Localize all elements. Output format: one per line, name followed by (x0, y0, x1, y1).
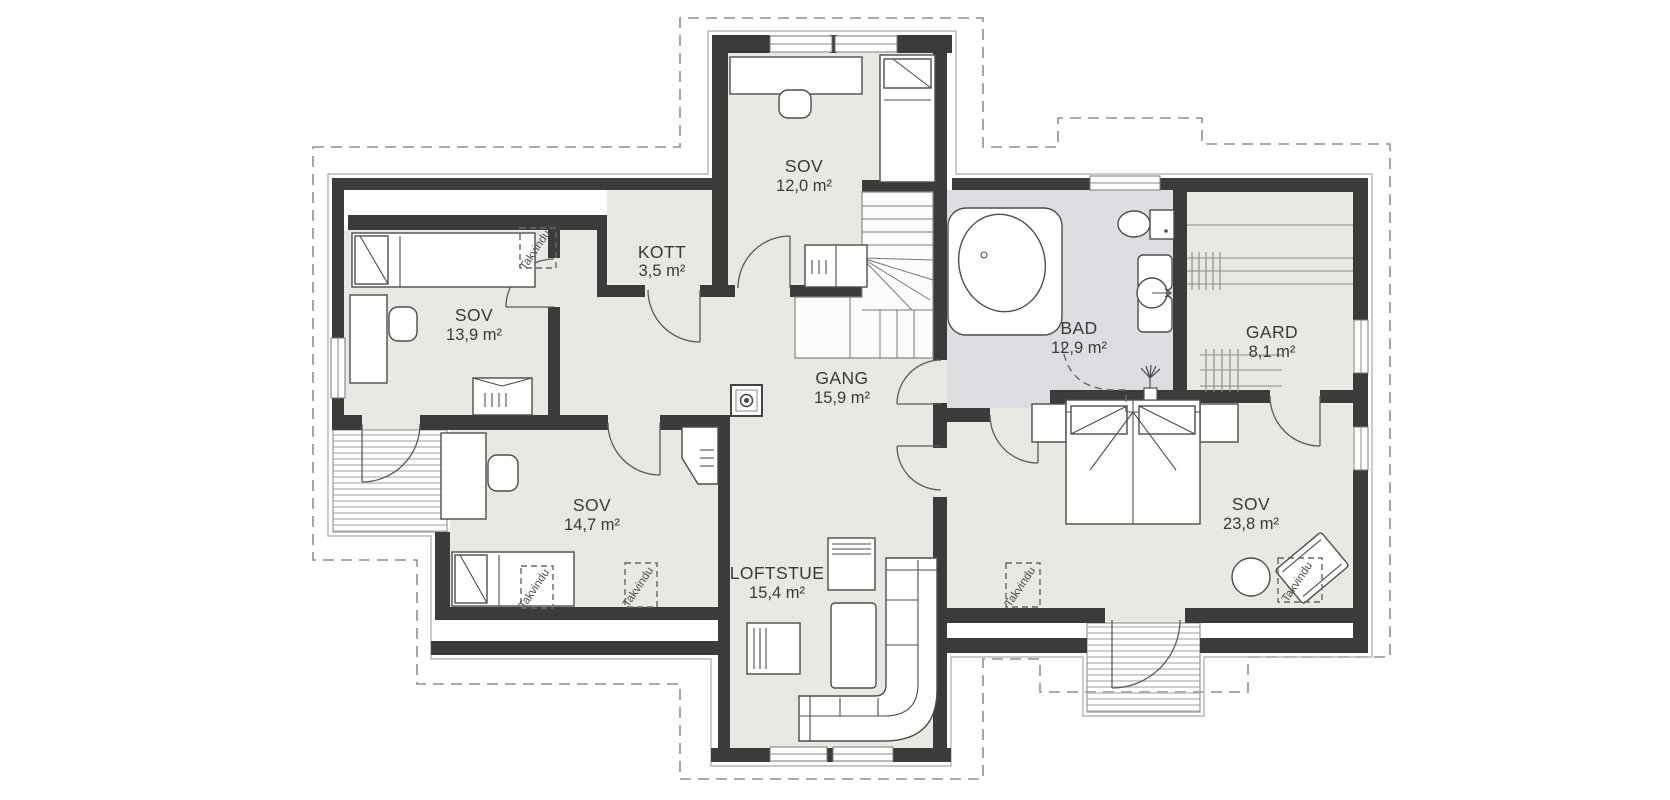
double-bed-icon (1066, 400, 1200, 524)
nightstand (1032, 404, 1066, 442)
room-name-label: KOTT (638, 242, 686, 262)
bed-icon (880, 55, 935, 182)
window-icon (331, 338, 345, 398)
window-icon (1354, 320, 1368, 373)
room-name-label: SOV (455, 305, 493, 325)
round-stool (1232, 558, 1270, 596)
threshold (645, 285, 700, 297)
room-area-label: 15,9 m² (814, 389, 870, 407)
room-name-label: SOV (785, 156, 823, 176)
floor-plan: Takvindu Takvindu Takvindu Takvindu Takv… (0, 0, 1670, 800)
dresser (805, 245, 867, 287)
chair (389, 307, 417, 341)
room-area-label: 3,5 m² (639, 262, 686, 280)
tv-bench (828, 538, 875, 590)
room-name-label: SOV (573, 495, 611, 515)
coffee-table (831, 603, 876, 688)
room-name-label: SOV (1232, 494, 1270, 514)
bed-icon (352, 233, 535, 287)
desk (730, 57, 862, 94)
window-icon (1354, 427, 1368, 470)
room-area-label: 23,8 m² (1223, 515, 1279, 533)
room-name-label: LOFTSTUE (730, 563, 825, 583)
room-name-label: GARD (1246, 322, 1298, 342)
threshold (735, 285, 790, 297)
bed-icon (452, 552, 574, 606)
room-name-label: BAD (1060, 318, 1097, 338)
balcony-south (1087, 623, 1200, 712)
threshold (1105, 608, 1185, 623)
bathtub-icon (948, 205, 1062, 335)
room-area-label: 12,9 m² (1051, 339, 1107, 357)
chair (488, 455, 518, 491)
window-icon (835, 36, 897, 52)
chimney-icon (731, 385, 762, 416)
washbasin-icon (1137, 255, 1172, 332)
room-area-label: 8,1 m² (1249, 343, 1296, 361)
cabinet (747, 623, 800, 674)
room-area-label: 13,9 m² (446, 326, 502, 344)
desk (350, 295, 387, 383)
window-icon (770, 36, 832, 52)
dresser (473, 378, 532, 415)
window-icon (833, 747, 893, 761)
threshold (362, 415, 420, 430)
room-area-label: 15,4 m² (749, 584, 805, 602)
chair (779, 90, 811, 118)
desk (441, 433, 486, 519)
threshold (1270, 390, 1320, 403)
window-icon (1090, 176, 1160, 190)
room-area-label: 12,0 m² (776, 177, 832, 195)
floor-plan-canvas: Takvindu Takvindu Takvindu Takvindu Takv… (0, 0, 1670, 800)
balcony-west (333, 430, 447, 532)
threshold (548, 258, 560, 307)
nightstand (1200, 404, 1238, 442)
room-name-label: GANG (815, 368, 868, 388)
threshold (608, 415, 660, 430)
room-area-label: 14,7 m² (564, 516, 620, 534)
threshold (933, 360, 947, 404)
threshold (990, 408, 1038, 422)
window-icon (770, 747, 827, 761)
